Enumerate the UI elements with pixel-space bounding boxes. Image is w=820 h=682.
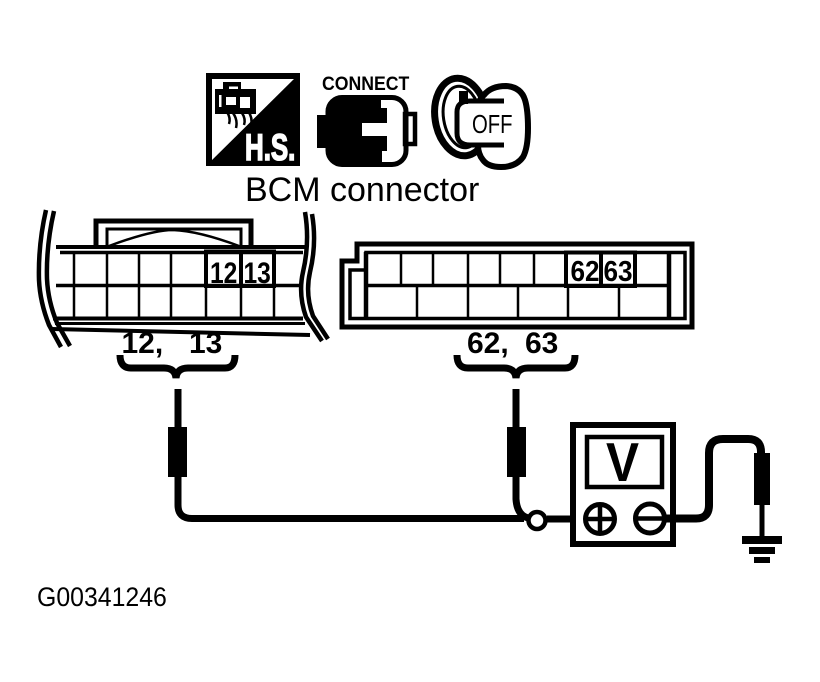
svg-text:13: 13 — [189, 327, 222, 360]
svg-text:G00341246: G00341246 — [37, 583, 167, 612]
svg-text:CONNECT: CONNECT — [322, 72, 409, 94]
svg-text:62: 62 — [571, 255, 600, 288]
svg-text:62,: 62, — [467, 327, 509, 360]
svg-text:V: V — [606, 433, 639, 494]
svg-text:BCM connector: BCM connector — [245, 171, 479, 209]
svg-text:63: 63 — [604, 255, 633, 288]
svg-text:63: 63 — [525, 327, 558, 360]
svg-text:OFF: OFF — [472, 110, 513, 139]
svg-text:12,: 12, — [122, 327, 164, 360]
svg-text:H.S.: H.S. — [245, 126, 295, 168]
svg-text:12: 12 — [210, 256, 237, 290]
svg-text:13: 13 — [244, 256, 271, 290]
